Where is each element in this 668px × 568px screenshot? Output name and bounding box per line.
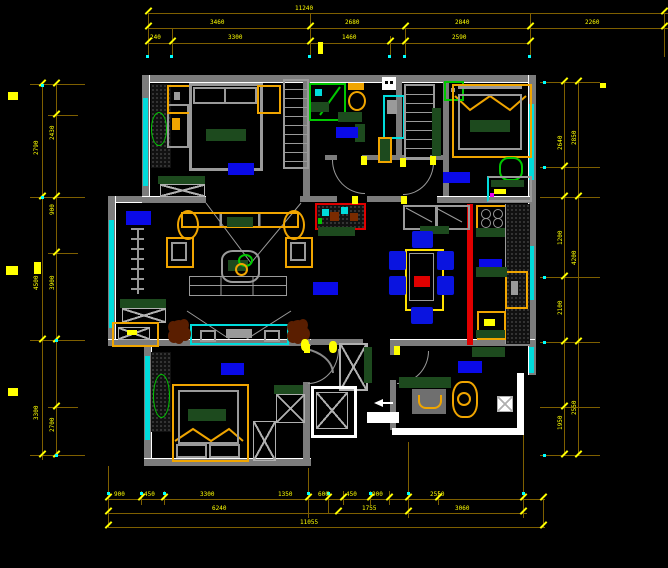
dim-text: 2840 [455,20,469,26]
dim-text: 2260 [585,20,599,26]
bed-pillow [470,120,510,132]
room-label-living [126,211,151,225]
axis-tag [6,266,18,275]
ext-line [523,435,524,518]
plant-brown-left [170,320,188,340]
tv-icon [226,329,252,338]
plant-icon [151,112,167,146]
ext-line [540,82,600,83]
toilet2-bowl-icon [457,392,471,406]
room-label-bath2 [458,361,482,373]
room-label-bedroom1 [228,163,254,175]
window-tag [34,262,41,274]
ext-line [540,167,600,168]
dim-text: 3460 [210,20,224,26]
wall-white-bath-right [517,373,524,430]
washer-drum-icon [387,100,397,114]
ext-dot [107,492,110,495]
toilet-bowl-icon [348,91,366,111]
cabinet-knob [127,330,137,335]
ext-line [540,407,600,408]
dim-line-left-outer [42,84,43,460]
window-bedroom3 [145,356,150,440]
ext-line [540,277,600,278]
dim-text: 3300 [228,35,242,41]
shower-head-icon [315,89,322,96]
dim-line-top-outer [148,13,668,14]
bed-bedroom2 [452,84,532,158]
dim-text: 11240 [295,6,313,12]
ext-line [540,455,600,456]
ext-line [540,197,600,198]
ext-dot [170,55,173,58]
side-table-inner [171,242,187,261]
wall-mid-h-b [300,196,337,202]
sofa-arm-left [177,210,199,240]
shower-bench [311,102,329,112]
dim-text: 2550 [572,401,578,415]
cabinet-drawers [160,184,205,197]
door-hinge [400,158,406,167]
ext-dot [41,196,44,199]
dim-line-left-inner [56,84,57,455]
ext-dot [55,339,58,342]
toilet2 [452,381,478,418]
ext-dot [163,492,166,495]
dim-text: 2430 [50,126,56,140]
bed-bedroom3 [172,384,249,462]
wardrobe-top [274,385,303,394]
ext-dot [41,84,44,87]
floor-drain [497,396,513,412]
wall-mid-h-c [367,196,405,202]
closet-clothes [432,108,441,156]
side-table-inner [290,242,306,261]
desk-dot [490,193,494,197]
dim-text: 600 [318,492,329,498]
dining-chair [389,251,406,270]
cabinet-box [200,330,216,342]
basin-icon [418,395,442,409]
ext-line [530,13,531,57]
console-deco [350,213,358,221]
dim-text: 2590 [452,35,466,41]
kitchen-counter [476,228,507,237]
floor-plan-canvas: 11240 3460 2680 2840 2260 240 3300 1460 … [0,0,668,568]
headboard [458,86,522,89]
ext-line [148,13,149,57]
ext-dot [543,81,546,84]
console-deco [318,218,322,224]
wardrobe-closet [404,84,435,160]
window-bedroom1 [143,98,148,186]
door-hinge [401,196,407,204]
desk-top [491,180,524,187]
dim-text: 2680 [345,20,359,26]
door-hinge [352,196,358,204]
dim-text: 450 [144,492,155,498]
kitchen-counter [476,267,507,277]
bed-bedroom1 [189,83,263,171]
oven-dial [484,319,495,326]
dim-text: 3900 [50,276,56,290]
dim-text: 2700 [50,418,56,432]
ext-dot [543,454,546,457]
ext-dot [308,55,311,58]
dining-chair [389,276,406,295]
dim-text: 3300 [34,406,40,420]
door-hinge [430,156,436,165]
bed-pillow [188,409,226,421]
table-deco-swirl [235,263,248,276]
door-hinge [394,346,400,355]
washing-machine [383,95,405,139]
dim-text: 900 [50,204,56,215]
ext-dot [522,492,525,495]
fridge [505,271,528,309]
burner-icon [481,218,491,228]
desk [487,176,532,202]
wall-mid-h-a [142,196,206,203]
sofa-arm-right [283,210,305,240]
ext-dot [388,55,391,58]
fridge-handle [511,281,518,295]
dresser-knob [172,118,180,130]
bed-drawer [209,444,240,458]
entry-label-block [367,412,399,423]
dim-text: 900 [114,492,125,498]
tv-cabinet [190,324,289,345]
ext-line [408,442,409,518]
nightstand-right [257,85,281,114]
dim-text: 450 [346,492,357,498]
dim-text: 1350 [278,492,292,498]
dim-text: 1950 [558,416,564,430]
console-deco [341,207,348,214]
ext-dot [543,276,546,279]
cabinet-top [158,176,205,184]
dim-text: 900 [372,492,383,498]
dim-text: 4500 [34,276,40,290]
window-bath2 [529,347,534,373]
door-hinge [361,156,367,165]
wall-white-bath-bottom [392,428,524,435]
wall-lamp-icon [329,341,337,353]
dim-line-right-inner [564,82,565,456]
washbasin [412,389,446,414]
ext-dot [543,166,546,169]
ext-line [664,13,665,57]
room-label-bath1 [336,127,358,138]
bed-pillow [206,129,246,141]
dining-chair [412,231,433,248]
ext-dot [528,55,531,58]
plant-brown-right [289,320,307,340]
ext-dot [407,492,410,495]
room-label-bedroom3 [221,363,244,375]
low-cabinet [112,322,159,347]
duct-shaft [382,77,396,90]
wardrobe-bedroom1 [283,79,309,169]
toilet-tank [348,83,364,90]
side-table-left [166,237,194,268]
console-deco [322,209,329,216]
lamp-icon [174,92,180,100]
dim-line-right-outer [578,82,579,456]
dim-text: 1755 [362,506,376,512]
stray-marker [600,83,606,88]
dim-text: 2790 [34,141,40,155]
plant-icon [153,374,170,418]
dim-line-top-inner [148,43,530,44]
dim-line-bottom-outer [108,527,545,528]
dim-text: 6240 [212,506,226,512]
dining-chair [437,251,454,270]
entry-arrow-icon [374,399,383,407]
living-rug [189,276,287,296]
dim-text: 4200 [572,251,578,265]
wardrobe-box [253,421,276,461]
coat-rack-branches [131,228,144,294]
dim-text: 3060 [455,506,469,512]
duct-mark [390,81,393,84]
entry-shelf [318,227,355,236]
bed-drawer [176,444,207,458]
axis-tag [8,92,18,100]
ext-dot [307,492,310,495]
kitchen-counter [476,330,505,338]
ext-dot [55,454,58,457]
wall-top [148,75,530,83]
dining-chair [437,276,454,295]
desk-item [494,189,506,194]
dim-text: 3300 [200,492,214,498]
cabinet-box [264,330,280,342]
dim-text: 2850 [572,131,578,145]
wall-lamp-icon [301,339,309,351]
dim-line-bottom-mid [108,513,527,514]
sideboard-top [120,299,166,308]
dim-text: 2100 [558,301,564,315]
dim-text: 11055 [300,520,318,526]
dining-chair [411,307,433,324]
sideboard-drawers [122,308,166,323]
bath2-counter [399,377,451,388]
axis-tag [8,388,18,396]
ext-line [540,342,600,343]
table-centerpiece [414,276,430,287]
duct-mark [385,81,388,84]
dim-line-top-mid [148,28,668,29]
side-table-right [285,237,313,268]
section-marker [318,42,323,54]
burner-icon [493,218,503,228]
ext-dot [146,55,149,58]
ext-dot [543,341,546,344]
dim-text: 1200 [558,231,564,245]
room-label-hallway [313,282,338,295]
dim-text: 240 [150,35,161,41]
dim-text: 2640 [558,136,564,150]
window-living [109,220,114,328]
ext-dot [403,55,406,58]
entry-console [315,203,366,230]
ext-line [310,13,311,57]
storage-box [316,392,348,429]
ext-dot [140,492,143,495]
room-label-bedroom2 [443,172,470,183]
closet-shelf [364,347,372,383]
sofa-seat [227,217,253,227]
bath-shelf [338,112,362,122]
bath-cabinet [378,137,392,163]
bath2-counter [472,347,505,357]
dim-text: 1460 [342,35,356,41]
headboard [193,87,257,104]
wardrobe-box [276,394,305,423]
console-deco [330,212,339,221]
dim-text: 2550 [430,492,444,498]
entry-arrow-tail [383,402,393,404]
